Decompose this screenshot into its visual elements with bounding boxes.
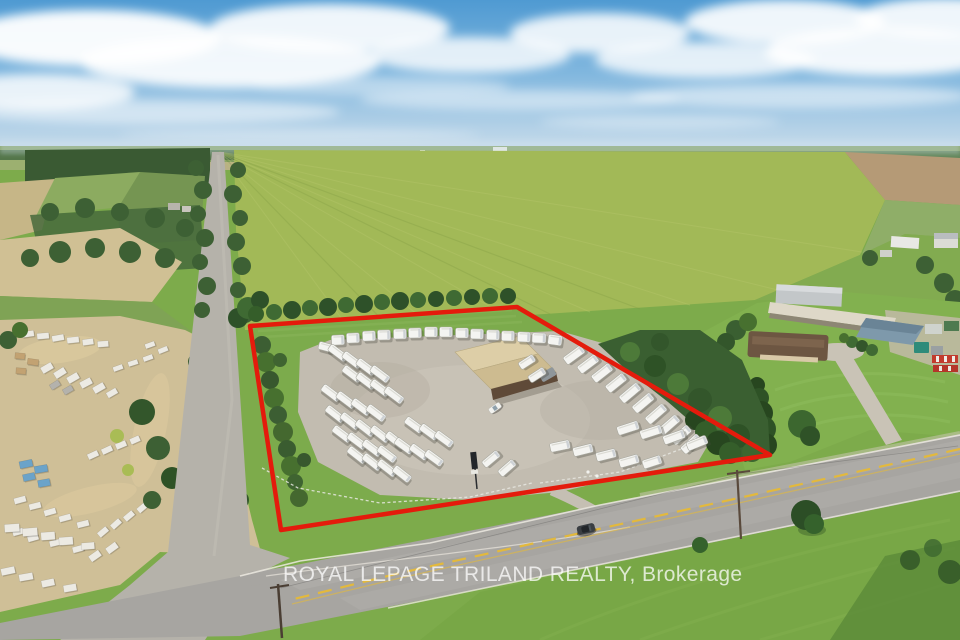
rv-unit	[532, 333, 548, 346]
pallet-stack	[67, 336, 81, 345]
bush	[692, 537, 708, 553]
rv-unit	[517, 332, 532, 345]
pallet-stack	[81, 542, 96, 551]
pallet-stack	[41, 531, 57, 541]
rv-unit	[425, 327, 440, 340]
rv-unit	[440, 327, 455, 340]
rv-unit	[377, 330, 392, 343]
pallet-stack	[4, 523, 21, 533]
pallet-stack	[97, 341, 109, 349]
rv-unit	[501, 331, 516, 344]
pallet-stack	[16, 368, 27, 376]
aerial-scene	[0, 0, 960, 640]
rv-unit	[470, 329, 485, 342]
pallet-stack	[15, 353, 27, 361]
rv-unit	[456, 328, 471, 341]
rv-unit	[393, 329, 408, 342]
rv-unit	[486, 330, 501, 343]
pallet-stack	[59, 536, 75, 546]
aerial-photo: ROYAL LEPAGE TRILAND REALTY, Brokerage	[0, 0, 960, 640]
rv-unit	[408, 328, 423, 341]
pallet-stack	[37, 332, 51, 340]
pallet-stack	[22, 527, 39, 538]
